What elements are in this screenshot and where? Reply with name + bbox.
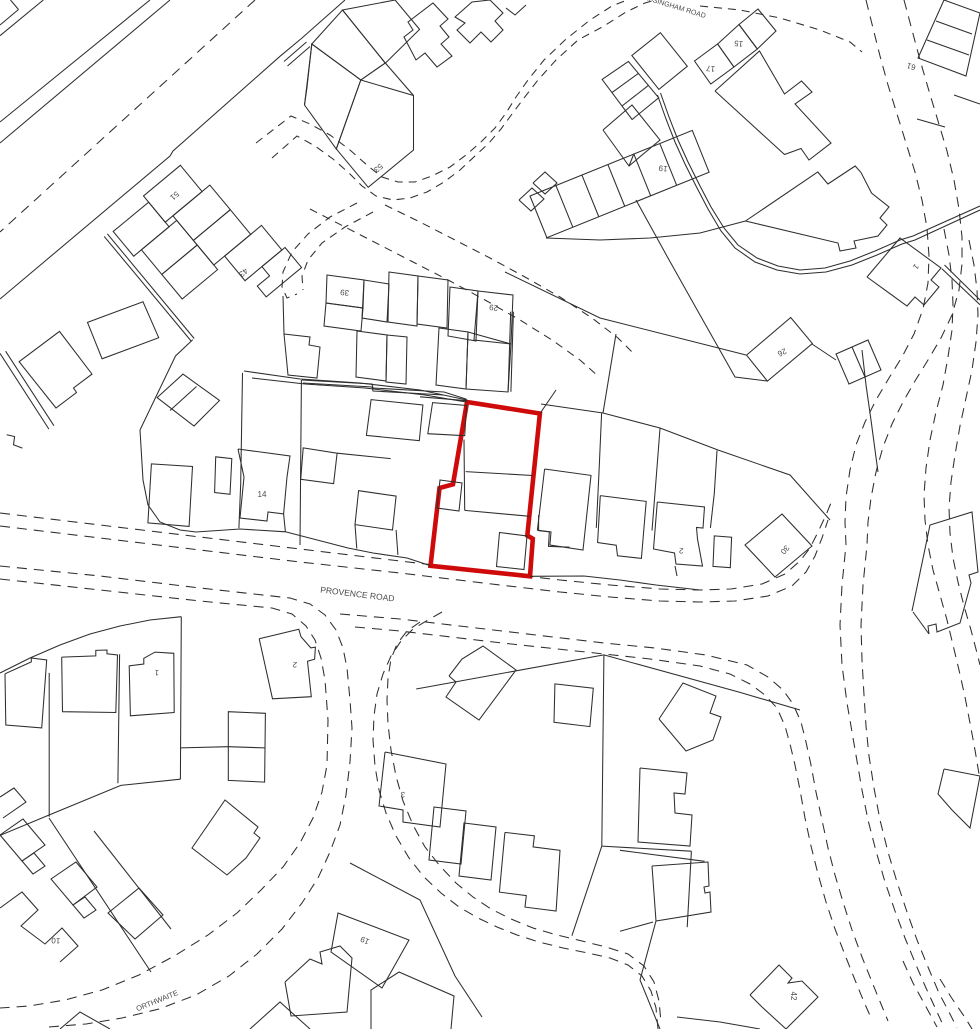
svg-text:17: 17 (705, 63, 715, 73)
svg-text:42: 42 (789, 992, 798, 1001)
svg-text:39: 39 (339, 287, 349, 297)
svg-text:14: 14 (258, 490, 267, 499)
svg-text:15: 15 (733, 38, 743, 48)
svg-text:19: 19 (658, 163, 668, 173)
svg-text:29: 29 (488, 302, 498, 312)
